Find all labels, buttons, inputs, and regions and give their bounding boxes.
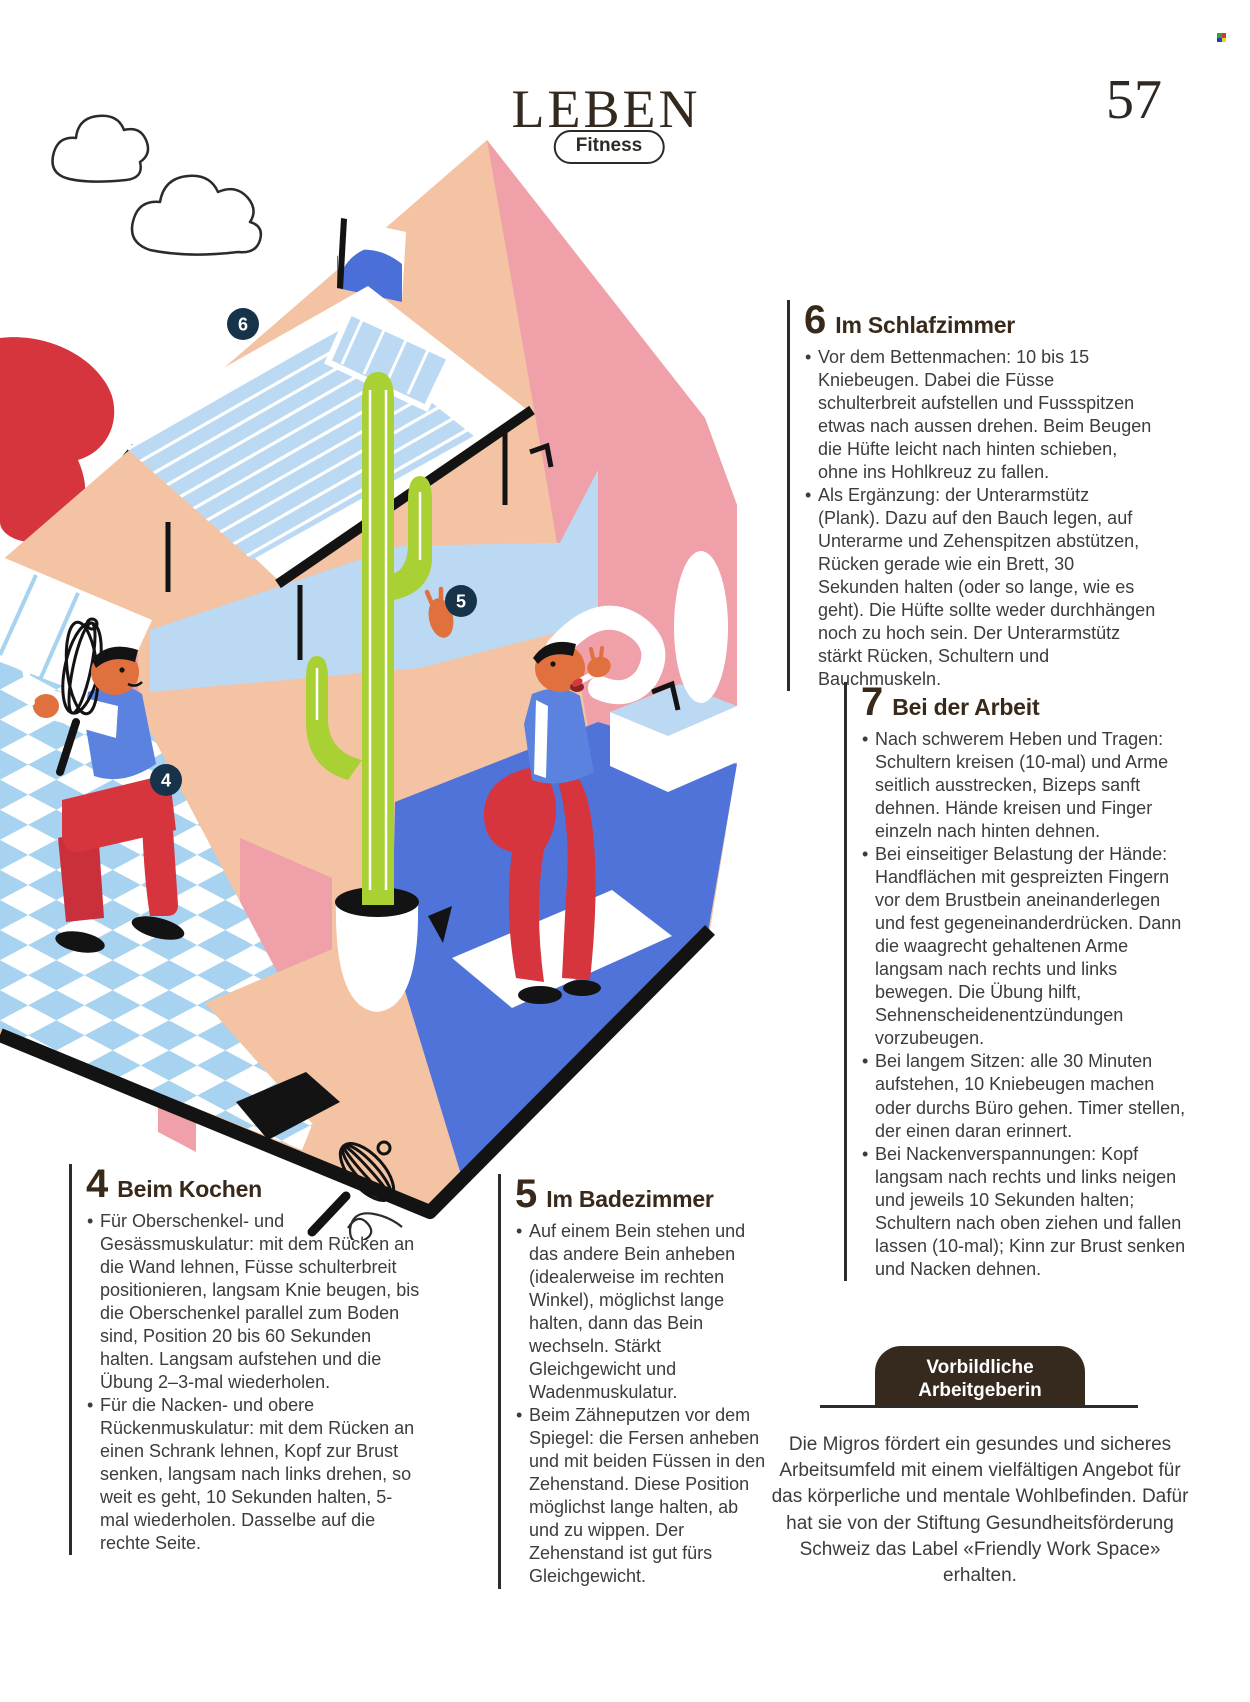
tip-item: Für Oberschenkel- und Gesässmuskulatur: … <box>86 1210 420 1394</box>
cloud-icon <box>53 116 261 255</box>
page-number: 57 <box>1106 68 1162 132</box>
section-arbeit: 7 Bei der Arbeit Nach schwerem Heben und… <box>844 682 1191 1281</box>
tip-list: Für Oberschenkel- und Gesässmuskulatur: … <box>86 1210 420 1555</box>
tip-item: Bei Nackenverspannungen: Kopf langsam na… <box>861 1143 1191 1281</box>
tip-item: Als Ergänzung: der Unterarmstütz (Plank)… <box>804 484 1156 691</box>
section-number: 7 <box>861 682 882 722</box>
section-title: Im Schlafzimmer <box>835 312 1015 339</box>
section-heading: 5 Im Badezimmer <box>515 1174 769 1214</box>
svg-text:4: 4 <box>161 771 171 791</box>
info-box-rule <box>820 1405 1138 1408</box>
tip-item: Auf einem Bein stehen und das andere Bei… <box>515 1220 769 1404</box>
tip-item: Für die Nacken- und obere Rückenmuskulat… <box>86 1394 420 1555</box>
home-fitness-illustration: 4 5 6 <box>0 100 745 1240</box>
section-number: 6 <box>804 300 825 340</box>
mirror <box>674 551 728 703</box>
section-heading: 6 Im Schlafzimmer <box>804 300 1156 340</box>
section-number: 5 <box>515 1174 536 1214</box>
svg-text:5: 5 <box>456 592 466 612</box>
tip-list: Auf einem Bein stehen und das andere Bei… <box>515 1220 769 1589</box>
section-number: 4 <box>86 1164 107 1204</box>
section-heading: 7 Bei der Arbeit <box>861 682 1191 722</box>
tip-item: Bei einseitiger Belastung der Hände: Han… <box>861 843 1191 1050</box>
svg-text:6: 6 <box>238 315 248 335</box>
info-box-title-line2: Arbeitgeberin <box>875 1379 1085 1402</box>
tip-item: Nach schwerem Heben und Tragen: Schulter… <box>861 728 1191 843</box>
employer-info-text: Die Migros fördert ein gesundes und sich… <box>763 1432 1197 1589</box>
section-schlafzimmer: 6 Im Schlafzimmer Vor dem Bettenmachen: … <box>787 300 1156 691</box>
badge-6: 6 <box>227 308 259 340</box>
section-title: Bei der Arbeit <box>892 694 1039 721</box>
tip-list: Nach schwerem Heben und Tragen: Schulter… <box>861 728 1191 1281</box>
section-title: Beim Kochen <box>117 1176 262 1203</box>
print-registration-mark-icon <box>1217 33 1226 42</box>
tip-item: Beim Zähneputzen vor dem Spiegel: die Fe… <box>515 1404 769 1588</box>
tip-item: Bei langem Sitzen: alle 30 Minuten aufst… <box>861 1050 1191 1142</box>
badge-4: 4 <box>150 764 182 796</box>
tip-list: Vor dem Bettenmachen: 10 bis 15 Kniebeug… <box>804 346 1156 691</box>
badge-5: 5 <box>445 585 477 617</box>
magazine-page: LEBEN Fitness 57 <box>0 0 1250 1702</box>
section-kochen: 4 Beim Kochen Für Oberschenkel- und Gesä… <box>69 1164 420 1555</box>
info-box-title-line1: Vorbildliche <box>875 1356 1085 1379</box>
section-badezimmer: 5 Im Badezimmer Auf einem Bein stehen un… <box>498 1174 769 1589</box>
tip-item: Vor dem Bettenmachen: 10 bis 15 Kniebeug… <box>804 346 1156 484</box>
section-heading: 4 Beim Kochen <box>86 1164 420 1204</box>
section-title: Im Badezimmer <box>546 1186 713 1213</box>
employer-info-box: Vorbildliche Arbeitgeberin <box>875 1346 1085 1406</box>
